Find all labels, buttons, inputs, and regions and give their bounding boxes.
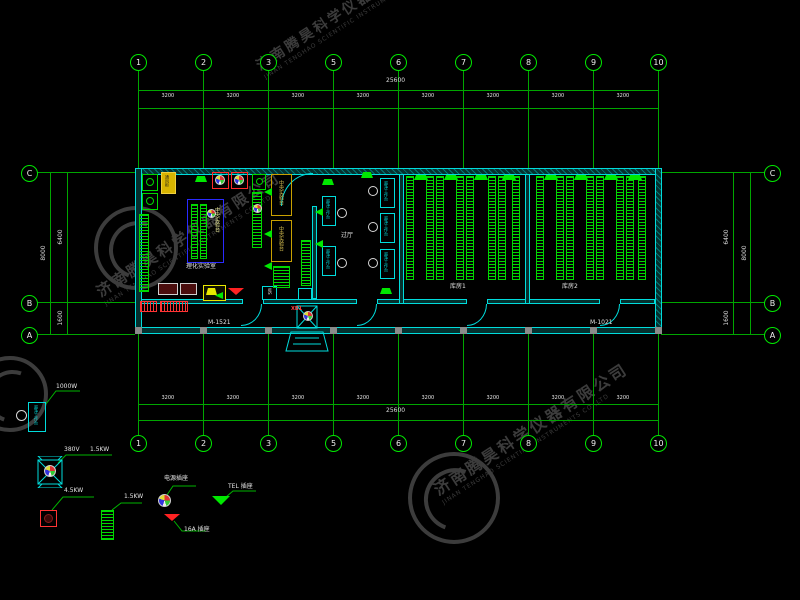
axis-bubble-bottom-9: 9 bbox=[585, 435, 602, 452]
wall-partition bbox=[312, 206, 317, 299]
legend-socket-tel-label: TEL 插座 bbox=[228, 484, 253, 490]
legend-fan-sphere bbox=[44, 465, 56, 477]
legend-clean-bench-label: 超净工作台 bbox=[34, 405, 38, 425]
legend-clean-bench-power: 1000W bbox=[56, 384, 77, 390]
dim-left-overall: 8000 bbox=[41, 238, 47, 268]
dim-bay-top: 3200 bbox=[487, 94, 500, 99]
grid-line-vertical bbox=[203, 70, 204, 168]
grid-line-vertical bbox=[138, 70, 139, 168]
legend-fan-power: 1.5KW bbox=[90, 447, 109, 453]
central-bench-rack bbox=[191, 204, 198, 259]
storage-rack bbox=[498, 176, 506, 280]
wall-corridor bbox=[487, 299, 600, 304]
dim-line bbox=[733, 172, 734, 334]
storage-rack bbox=[488, 176, 496, 280]
dim-line bbox=[50, 172, 51, 334]
column-marker bbox=[655, 327, 662, 334]
storage-rack bbox=[596, 176, 604, 280]
watermark-cn: 济南腾昊科学仪器有限公司 bbox=[428, 356, 632, 500]
row-axis-C bbox=[661, 172, 764, 173]
central-bench-label: 中央实验台 bbox=[214, 207, 219, 232]
dim-bay-bottom: 3200 bbox=[617, 396, 630, 401]
room-label-hall: 过厅 bbox=[341, 233, 353, 239]
wall-corridor bbox=[620, 299, 655, 304]
entrance-porch bbox=[285, 331, 329, 353]
axis-bubble-bottom-8: 8 bbox=[520, 435, 537, 452]
dim-line bbox=[138, 90, 658, 91]
door-label-right: M-1021 bbox=[590, 320, 613, 326]
axis-bubble-right-B: B bbox=[764, 295, 781, 312]
clean-bench-label: 超净工作台 bbox=[384, 252, 388, 272]
stool-symbol bbox=[368, 222, 378, 232]
axis-bubble-right-A: A bbox=[764, 327, 781, 344]
axis-bubble-left-B: B bbox=[21, 295, 38, 312]
storage-rack bbox=[466, 176, 474, 280]
grid-line-vertical bbox=[658, 334, 659, 435]
column-marker bbox=[265, 327, 272, 334]
axis-bubble-top-2: 2 bbox=[195, 54, 212, 71]
grid-line-vertical bbox=[268, 70, 269, 168]
axis-bubble-top-8: 8 bbox=[520, 54, 537, 71]
clean-bench-label: 超净工作台 bbox=[384, 181, 388, 201]
storage-rack bbox=[456, 176, 464, 280]
cabinet-symbol bbox=[146, 197, 154, 205]
fume-hood-label: 通风柜 bbox=[165, 175, 169, 187]
storage-rack bbox=[406, 176, 414, 280]
axis-bubble-top-10: 10 bbox=[650, 54, 667, 71]
axis-bubble-top-5: 5 bbox=[325, 54, 342, 71]
legend-socket-sphere bbox=[158, 494, 171, 507]
stool-symbol bbox=[337, 258, 347, 268]
grid-line-vertical bbox=[593, 70, 594, 168]
axis-bubble-top-3: 3 bbox=[260, 54, 277, 71]
legend-fan-voltage: 380V bbox=[64, 447, 80, 453]
axis-bubble-bottom-5: 5 bbox=[325, 435, 342, 452]
ceiling-lamp bbox=[195, 176, 207, 182]
storage-rack bbox=[556, 176, 564, 280]
legend-rack bbox=[101, 510, 114, 540]
column-marker bbox=[330, 327, 337, 334]
bench-sphere bbox=[253, 204, 262, 213]
stool-symbol bbox=[368, 186, 378, 196]
dim-bay-bottom: 3200 bbox=[357, 396, 370, 401]
dim-line bbox=[67, 172, 68, 334]
grid-line-vertical bbox=[463, 70, 464, 168]
grid-line-vertical bbox=[528, 70, 529, 168]
ws-label: WS bbox=[267, 288, 271, 295]
clean-bench-label: 超净工作台 bbox=[326, 249, 330, 269]
row-axis-A bbox=[661, 334, 764, 335]
column-marker bbox=[460, 327, 467, 334]
axis-bubble-top-9: 9 bbox=[585, 54, 602, 71]
dim-total-top: 25600 bbox=[386, 78, 405, 84]
watermark-text: 济南腾昊科学仪器有限公司 JINAN TENGHAO SCIENTIFIC IN… bbox=[252, 0, 438, 81]
dim-bay-bottom: 3200 bbox=[292, 396, 305, 401]
storage-rack bbox=[536, 176, 544, 280]
wall-corridor bbox=[377, 299, 467, 304]
room-label-store1: 库房1 bbox=[450, 284, 466, 290]
wall-partition bbox=[525, 174, 530, 304]
side-bench bbox=[273, 266, 290, 288]
door-arc bbox=[241, 304, 262, 326]
stool-symbol bbox=[337, 208, 347, 218]
dim-left-upper: 6400 bbox=[58, 222, 64, 252]
power-box-label: XB1 bbox=[291, 307, 302, 312]
side-bench bbox=[301, 240, 311, 286]
power-box-sphere bbox=[303, 311, 313, 321]
column-marker bbox=[135, 327, 142, 334]
storage-rack bbox=[566, 176, 574, 280]
dim-line bbox=[750, 172, 751, 334]
axis-bubble-top-6: 6 bbox=[390, 54, 407, 71]
dim-bay-top: 3200 bbox=[162, 94, 175, 99]
axis-bubble-bottom-6: 6 bbox=[390, 435, 407, 452]
axis-bubble-bottom-7: 7 bbox=[455, 435, 472, 452]
corner-counter bbox=[298, 288, 312, 300]
central-bench-label: 中央实验台 bbox=[278, 226, 283, 251]
ceiling-lamp bbox=[380, 288, 392, 294]
speaker-icon bbox=[264, 230, 272, 238]
door-arc bbox=[357, 304, 377, 326]
dim-bay-bottom: 3200 bbox=[422, 396, 435, 401]
dim-bay-bottom: 3200 bbox=[487, 396, 500, 401]
legend-socket-label: 电源插座 bbox=[164, 476, 188, 482]
radiator bbox=[160, 301, 188, 312]
dim-right-upper: 6400 bbox=[724, 222, 730, 252]
room-label-lab: 理化实验室 bbox=[186, 264, 216, 270]
dim-bay-top: 3200 bbox=[292, 94, 305, 99]
row-axis-B bbox=[661, 302, 764, 303]
wall-right bbox=[655, 168, 662, 334]
axis-bubble-bottom-10: 10 bbox=[650, 435, 667, 452]
side-bench bbox=[139, 214, 149, 292]
cad-floor-plan-canvas: 济南腾昊科学仪器有限公司 JINAN TENGHAO SCIENTIFIC IN… bbox=[0, 0, 800, 600]
dim-left-lower: 1600 bbox=[58, 303, 64, 333]
dim-line bbox=[138, 108, 658, 109]
storage-rack bbox=[426, 176, 434, 280]
grid-line-vertical bbox=[658, 70, 659, 168]
grid-line-vertical bbox=[398, 70, 399, 168]
storage-rack bbox=[638, 176, 646, 280]
column-marker bbox=[590, 327, 597, 334]
ceiling-lamp bbox=[322, 179, 334, 185]
wall-partition bbox=[399, 174, 404, 304]
dim-right-overall: 8000 bbox=[742, 238, 748, 268]
dim-bay-top: 3200 bbox=[552, 94, 565, 99]
room-label-store2: 库房2 bbox=[562, 284, 578, 290]
dim-bay-top: 3200 bbox=[227, 94, 240, 99]
clean-bench-label: 超净工作台 bbox=[326, 199, 330, 219]
axis-bubble-top-1: 1 bbox=[130, 54, 147, 71]
dim-bay-top: 3200 bbox=[422, 94, 435, 99]
storage-rack bbox=[586, 176, 594, 280]
door-arc bbox=[467, 304, 487, 326]
dim-bay-top: 3200 bbox=[357, 94, 370, 99]
dim-bay-top: 3200 bbox=[617, 94, 630, 99]
side-bench bbox=[252, 192, 262, 248]
column-marker bbox=[200, 327, 207, 334]
cabinet-symbol bbox=[146, 178, 154, 186]
legend-rack-power: 1.5KW bbox=[124, 494, 143, 500]
column-marker bbox=[525, 327, 532, 334]
legend-exhaust-power: 4.5KW bbox=[64, 488, 83, 494]
row-axis-A bbox=[36, 334, 135, 335]
cabinet-symbol bbox=[256, 178, 263, 185]
fan-sphere bbox=[215, 175, 225, 185]
floor-drain-symbol bbox=[228, 288, 244, 295]
axis-bubble-left-C: C bbox=[21, 165, 38, 182]
axis-bubble-right-C: C bbox=[764, 165, 781, 182]
stool-symbol bbox=[368, 258, 378, 268]
central-bench-rack bbox=[200, 204, 207, 259]
grid-line-vertical bbox=[333, 70, 334, 168]
speaker-icon bbox=[264, 262, 272, 270]
legend-exhaust-circle bbox=[44, 514, 53, 523]
dim-total-bottom: 25600 bbox=[386, 408, 405, 414]
storage-rack bbox=[436, 176, 444, 280]
storage-rack bbox=[512, 176, 520, 280]
watermark-text: 济南腾昊科学仪器有限公司 JINAN TENGHAO SCIENTIFIC IN… bbox=[428, 356, 636, 506]
bench-dark bbox=[180, 283, 197, 295]
axis-bubble-left-A: A bbox=[21, 327, 38, 344]
bench-dark bbox=[158, 283, 178, 295]
dim-right-lower: 1600 bbox=[724, 303, 730, 333]
legend-socket-16a-label: 16A 插座 bbox=[184, 527, 210, 533]
clean-bench-label: 超净工作台 bbox=[384, 216, 388, 236]
storage-rack bbox=[626, 176, 634, 280]
door-label-left: M-1521 bbox=[208, 320, 231, 326]
column-marker bbox=[395, 327, 402, 334]
radiator bbox=[140, 301, 157, 312]
axis-bubble-top-7: 7 bbox=[455, 54, 472, 71]
legend-stool-symbol bbox=[16, 410, 27, 421]
fan-sphere bbox=[234, 175, 244, 185]
central-bench-label: 中央实验台 bbox=[278, 180, 283, 205]
storage-rack bbox=[616, 176, 624, 280]
